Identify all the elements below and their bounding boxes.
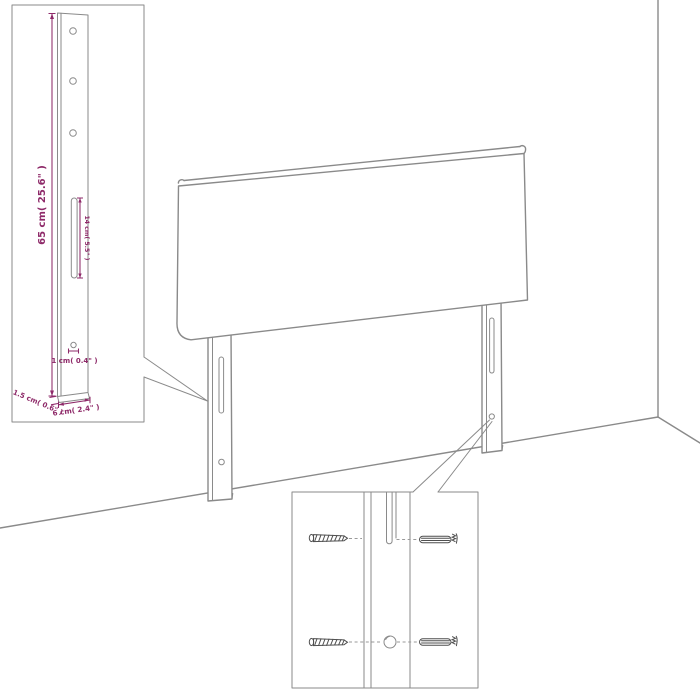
bracket-hole-middle <box>70 78 77 85</box>
bracket-small-hole <box>71 342 76 347</box>
left-leg-hole <box>219 459 225 465</box>
panel-top-left-curl <box>178 180 184 183</box>
bracket-slot <box>71 198 77 278</box>
height-label: 65 cm( 25.6" ) <box>37 165 48 245</box>
floor-line-right <box>658 417 700 443</box>
panel-top-right-curl <box>520 146 526 154</box>
headboard-panel <box>177 146 528 340</box>
hardware-inset-border <box>292 492 478 688</box>
slot-label: 14 cm( 5.5" ) <box>83 215 90 260</box>
callout-lines-left-inset <box>144 357 208 401</box>
screw-bottom-right <box>420 636 458 645</box>
left-leg-body <box>208 330 232 501</box>
screw-bottom-left <box>309 638 347 645</box>
bracket-hole-top <box>70 28 77 35</box>
diagram-canvas: 65 cm( 25.6" ) 14 cm( 5.5" ) 1 cm( 0.4" … <box>0 0 700 700</box>
panel-front-face <box>177 154 528 340</box>
screw-top-right <box>420 534 458 543</box>
hole-label: 1 cm( 0.4" ) <box>51 357 97 365</box>
right-leg-hole <box>489 414 494 419</box>
alignment-dashed-lines <box>349 539 418 643</box>
dimension-height: 65 cm( 25.6" ) <box>37 14 56 397</box>
leg-closeup-hole <box>384 636 396 648</box>
screw-top-left <box>309 534 347 541</box>
headboard-left-leg <box>208 330 233 501</box>
headboard-right-leg <box>482 296 503 453</box>
floor-line-left <box>0 417 658 528</box>
leg-closeup-slot <box>387 492 397 544</box>
right-leg-slot <box>490 318 494 373</box>
bracket-hole-lower <box>70 130 77 137</box>
left-leg-slot <box>219 357 224 413</box>
hardware-detail-inset <box>292 492 478 688</box>
product-diagram: 65 cm( 25.6" ) 14 cm( 5.5" ) 1 cm( 0.4" … <box>0 0 700 700</box>
bracket-detail-inset: 65 cm( 25.6" ) 14 cm( 5.5" ) 1 cm( 0.4" … <box>12 5 144 422</box>
